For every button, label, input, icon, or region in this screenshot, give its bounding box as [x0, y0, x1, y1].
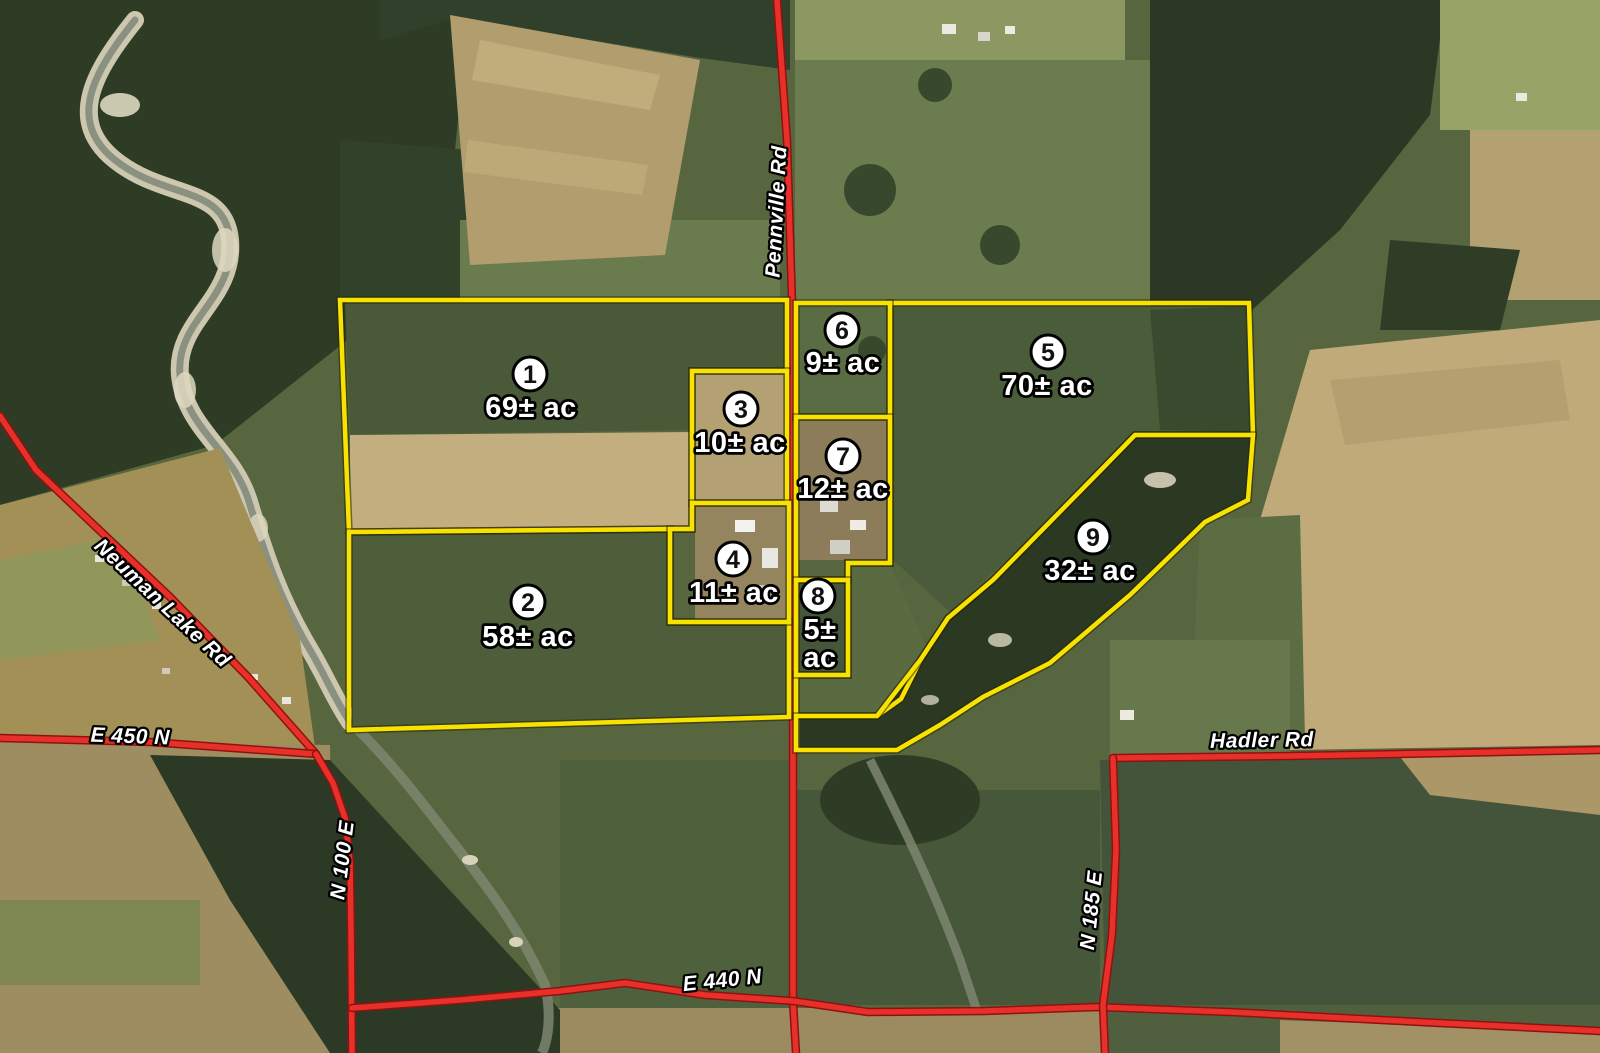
tree-clump: [844, 164, 896, 216]
tract-5-number: 5: [1041, 339, 1055, 367]
tract-2-acreage: 58± ac: [482, 621, 574, 653]
woods-patch: [1150, 306, 1250, 432]
building: [1516, 93, 1527, 101]
tract-3-acreage: 10± ac: [694, 427, 786, 459]
building: [830, 540, 850, 554]
tract-5-acreage: 70± ac: [1001, 370, 1093, 402]
building: [282, 697, 291, 704]
e-450-n-label: E 450 N: [90, 724, 170, 750]
tract-9-number: 9: [1086, 524, 1100, 552]
tract-8-number: 8: [811, 583, 825, 611]
sandbar: [462, 855, 478, 865]
woods-patch: [820, 755, 980, 845]
woods-patch: [1380, 240, 1520, 330]
tract-7-number: 7: [836, 443, 850, 471]
tract-1-number: 1: [523, 361, 537, 389]
tract-7-acreage: 12± ac: [797, 473, 889, 505]
aerial-imagery-background: [0, 0, 1600, 1053]
tract-4-number: 4: [726, 546, 740, 574]
building: [1120, 710, 1134, 720]
field-patch: [0, 900, 200, 985]
tract-9-acreage: 32± ac: [1044, 555, 1136, 587]
tract-2-number: 2: [521, 589, 535, 617]
tract-6-number: 6: [835, 317, 849, 345]
sandbar: [1144, 472, 1176, 488]
building: [735, 520, 755, 532]
tract-8-acreage: ac: [803, 642, 836, 674]
sandbar: [212, 228, 238, 272]
building: [978, 32, 990, 41]
building: [850, 520, 866, 530]
field-patch: [795, 0, 1125, 70]
tract-1-acreage: 69± ac: [485, 392, 577, 424]
building: [1005, 26, 1015, 34]
hadler-rd-label: Hadler Rd: [1210, 728, 1315, 753]
building: [762, 548, 778, 568]
tree-clump: [980, 225, 1020, 265]
building: [162, 668, 170, 674]
sandbar: [100, 93, 140, 117]
aerial-tract-map: Pennville RdNeuman Lake RdE 450 NN 100 E…: [0, 0, 1600, 1053]
tract-4-acreage: 11± ac: [689, 577, 779, 609]
woods-patch: [340, 140, 470, 300]
sandbar: [921, 695, 939, 705]
tract-8-marker: 85±ac: [801, 579, 837, 674]
tree-clump: [918, 68, 952, 102]
sandbar: [174, 372, 196, 408]
field-patch: [1440, 0, 1600, 130]
sandbar: [509, 937, 523, 947]
building: [942, 24, 956, 34]
tract-6-acreage: 9± ac: [806, 347, 881, 379]
tract-3-number: 3: [734, 396, 748, 424]
sandbar: [988, 633, 1012, 647]
field-patch: [350, 432, 693, 530]
